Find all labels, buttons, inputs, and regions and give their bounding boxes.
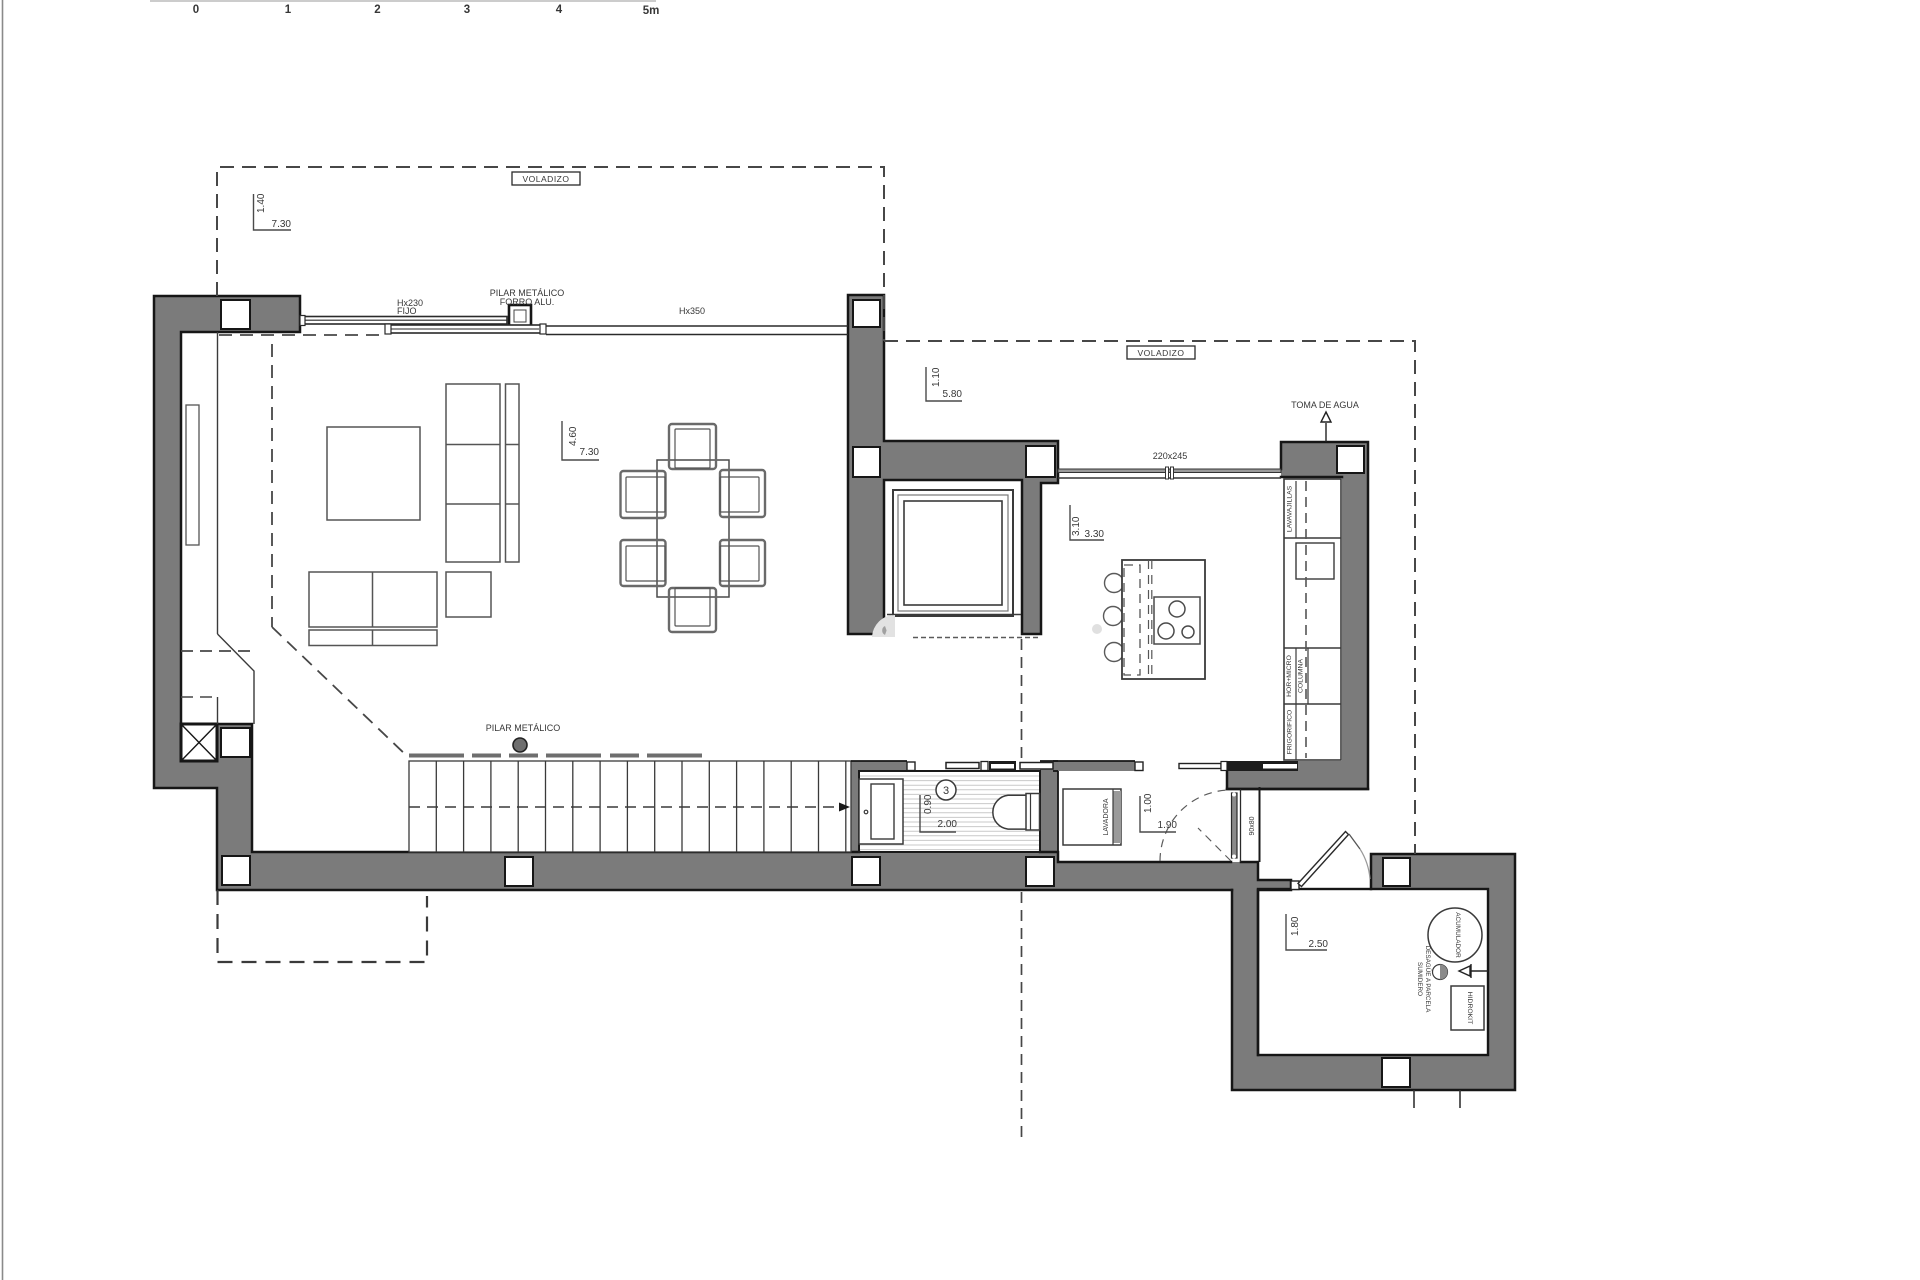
svg-text:2.50: 2.50 [1309,939,1329,950]
svg-text:FRIGORIFICO: FRIGORIFICO [1287,710,1294,755]
svg-text:LAVADORA: LAVADORA [1103,798,1110,835]
svg-text:FORRO ALU.: FORRO ALU. [500,297,555,307]
svg-text:4.60: 4.60 [568,426,579,446]
svg-text:1.00: 1.00 [1143,793,1154,813]
svg-text:3: 3 [943,785,949,797]
svg-text:3: 3 [464,4,470,16]
svg-text:2: 2 [374,4,380,16]
svg-text:1.40: 1.40 [256,193,267,213]
svg-text:1.10: 1.10 [931,367,942,387]
svg-text:HOR+MICRO: HOR+MICRO [1286,655,1293,697]
svg-text:1.90: 1.90 [1158,820,1178,831]
svg-text:HIDROKIT: HIDROKIT [1466,992,1473,1024]
svg-text:4: 4 [556,4,563,16]
svg-text:7.30: 7.30 [272,219,292,230]
svg-text:90x80: 90x80 [1249,816,1256,835]
svg-text:VOLADIZO: VOLADIZO [523,174,570,184]
svg-text:220x245: 220x245 [1153,451,1188,461]
svg-text:0.90: 0.90 [923,794,934,814]
svg-text:DESAGÜE A PARCELA: DESAGÜE A PARCELA [1424,946,1432,1014]
svg-text:0: 0 [193,4,199,16]
svg-text:1: 1 [285,4,292,16]
svg-text:3.10: 3.10 [1071,516,1082,536]
svg-text:LAVAVAJILLAS: LAVAVAJILLAS [1287,485,1294,532]
svg-text:5.80: 5.80 [943,389,963,400]
svg-text:SUMIDERO: SUMIDERO [1416,962,1423,996]
svg-text:COLUMNA: COLUMNA [1298,659,1305,693]
svg-text:7.30: 7.30 [580,447,600,458]
svg-text:Hx350: Hx350 [679,306,705,316]
svg-text:5m: 5m [643,5,660,17]
svg-text:2.00: 2.00 [938,819,958,830]
svg-text:TOMA DE AGUA: TOMA DE AGUA [1291,400,1359,410]
svg-text:PILAR METÁLICO: PILAR METÁLICO [486,723,561,733]
svg-text:FIJO: FIJO [397,306,417,316]
svg-text:3.30: 3.30 [1085,529,1105,540]
svg-text:VOLADIZO: VOLADIZO [1138,348,1185,358]
svg-text:1.80: 1.80 [1290,916,1301,936]
svg-text:ACUMULADOR: ACUMULADOR [1454,912,1461,958]
